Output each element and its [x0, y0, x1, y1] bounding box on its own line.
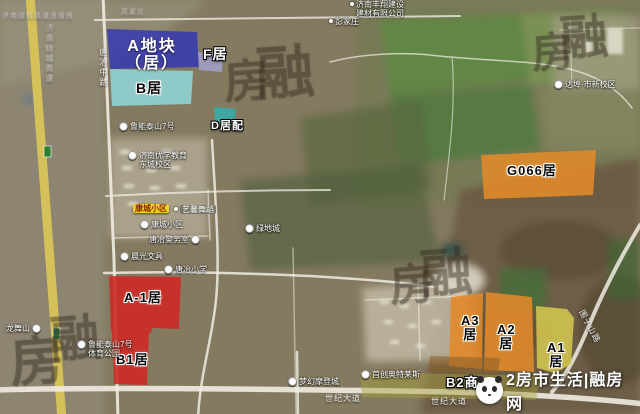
village-label-top: 高家庄 [121, 7, 145, 17]
poi-label: 首创奥特莱斯 [372, 370, 420, 379]
parcel-label-g066: G066居 [507, 164, 557, 178]
parcel-label-a2: A2 居 [497, 323, 516, 350]
poi-label: 鲁能泰山7号 体育公园 [88, 340, 132, 358]
poi-circle-icon [245, 224, 254, 233]
poi-kangcheng-estate-highlight: 康城小区 [133, 204, 169, 213]
poi-circle-icon [77, 340, 86, 349]
poi-pengjiazhuang: 彭家庄 [329, 17, 359, 26]
poi-circle-icon [554, 80, 563, 89]
road-label-tangye-middle-road: 唐冶中路 [98, 48, 109, 88]
poi-greenland-city: 绿地城 [245, 224, 280, 233]
poi-dream-city: 梦幻摩登城 [288, 377, 339, 386]
poi-label: 唐冶小学 [175, 265, 207, 274]
poi-youxue-education: 济南优学教育 东城校区 [128, 151, 187, 169]
poi-new-campus: 达埠·市新校区 [554, 80, 616, 89]
satellite-land-parcel-map: 房 融 房 融 房 融 融 房 A地块（居） F居 B居 D居配 G066居 A… [0, 0, 640, 414]
parcel-label-a3: A3 居 [461, 314, 480, 341]
poi-circle-icon [119, 122, 128, 131]
poi-label: 唐冶警务室 [149, 235, 189, 244]
poi-label: 艺馨舞蹈 [180, 205, 216, 214]
poi-police-station: 唐冶警务室 [149, 235, 200, 244]
poi-circle-icon [120, 252, 129, 261]
poi-label: 绿地城 [256, 224, 280, 233]
parcel-label-a1-residential: A-1居 [124, 291, 162, 305]
poi-stationery: 晨光文具 [120, 252, 163, 261]
road-label-ring-expressway: 济南绕城高速 [44, 24, 55, 84]
poi-circle-icon [191, 235, 200, 244]
poi-sports-park: 鲁能泰山7号 体育公园 [77, 340, 132, 358]
road-label-century-avenue: 世纪大道 [325, 393, 361, 404]
watermark-text: 2房市生活|融房网 [506, 366, 640, 414]
poi-circle-icon [32, 324, 41, 333]
poi-circle-icon [140, 220, 149, 229]
poi-circle-icon [164, 265, 173, 274]
seal-watermark: 融 [418, 246, 474, 302]
poi-label: 彭家庄 [335, 17, 359, 26]
poi-dot-icon [350, 2, 354, 6]
poi-circle-icon [288, 377, 297, 386]
poi-kangcheng-estate: 康城小区 [140, 220, 183, 229]
highway-shield-icon [44, 146, 51, 157]
poi-tangye-primary-school: 唐冶小学 [164, 265, 207, 274]
poi-dot-icon [329, 19, 333, 23]
poi-circle-icon [128, 151, 137, 160]
panda-logo-icon [476, 377, 503, 404]
parcel-label-f: F居 [203, 47, 228, 62]
parcel-label-a1-yellow: A1 居 [547, 341, 566, 368]
site-watermark: 2房市生活|融房网 [476, 366, 640, 414]
poi-label: 鲁能泰山7号 [130, 122, 174, 131]
poi-label: 济南优学教育 东城校区 [139, 151, 187, 169]
parcel-label-a-block: A地块（居） [106, 39, 198, 73]
poi-company: 济南丰翔建设 建材有限公司 [350, 0, 404, 18]
poi-label: 康城小区 [133, 204, 169, 213]
poi-luneng-taishan7: 鲁能泰山7号 [119, 122, 174, 131]
seal-watermark: 融 [254, 42, 316, 104]
poi-circle-icon [361, 370, 370, 379]
seal-watermark: 房 [531, 31, 576, 76]
poi-label: 晨光文具 [131, 252, 163, 261]
poi-longwu-mountain: 龙舞山 [6, 324, 41, 333]
poi-dance-studio: 艺馨舞蹈 [174, 205, 216, 214]
poi-label: 梦幻摩登城 [299, 377, 339, 386]
road-label-century-avenue: 世纪大道 [431, 396, 467, 407]
poi-label: 济南丰翔建设 建材有限公司 [356, 0, 404, 18]
road-label-expressway-connector: 济南绕城高速连接线 [2, 11, 74, 21]
poi-dot-icon [174, 207, 178, 211]
poi-label: 康城小区 [151, 220, 183, 229]
parcel-label-d: D居配 [211, 121, 244, 133]
parcel-label-b: B居 [136, 81, 162, 96]
parcel-label-b2: B2商 [446, 376, 479, 390]
poi-outlets: 首创奥特莱斯 [361, 370, 420, 379]
poi-label: 达埠·市新校区 [565, 80, 616, 89]
poi-label: 龙舞山 [6, 324, 30, 333]
